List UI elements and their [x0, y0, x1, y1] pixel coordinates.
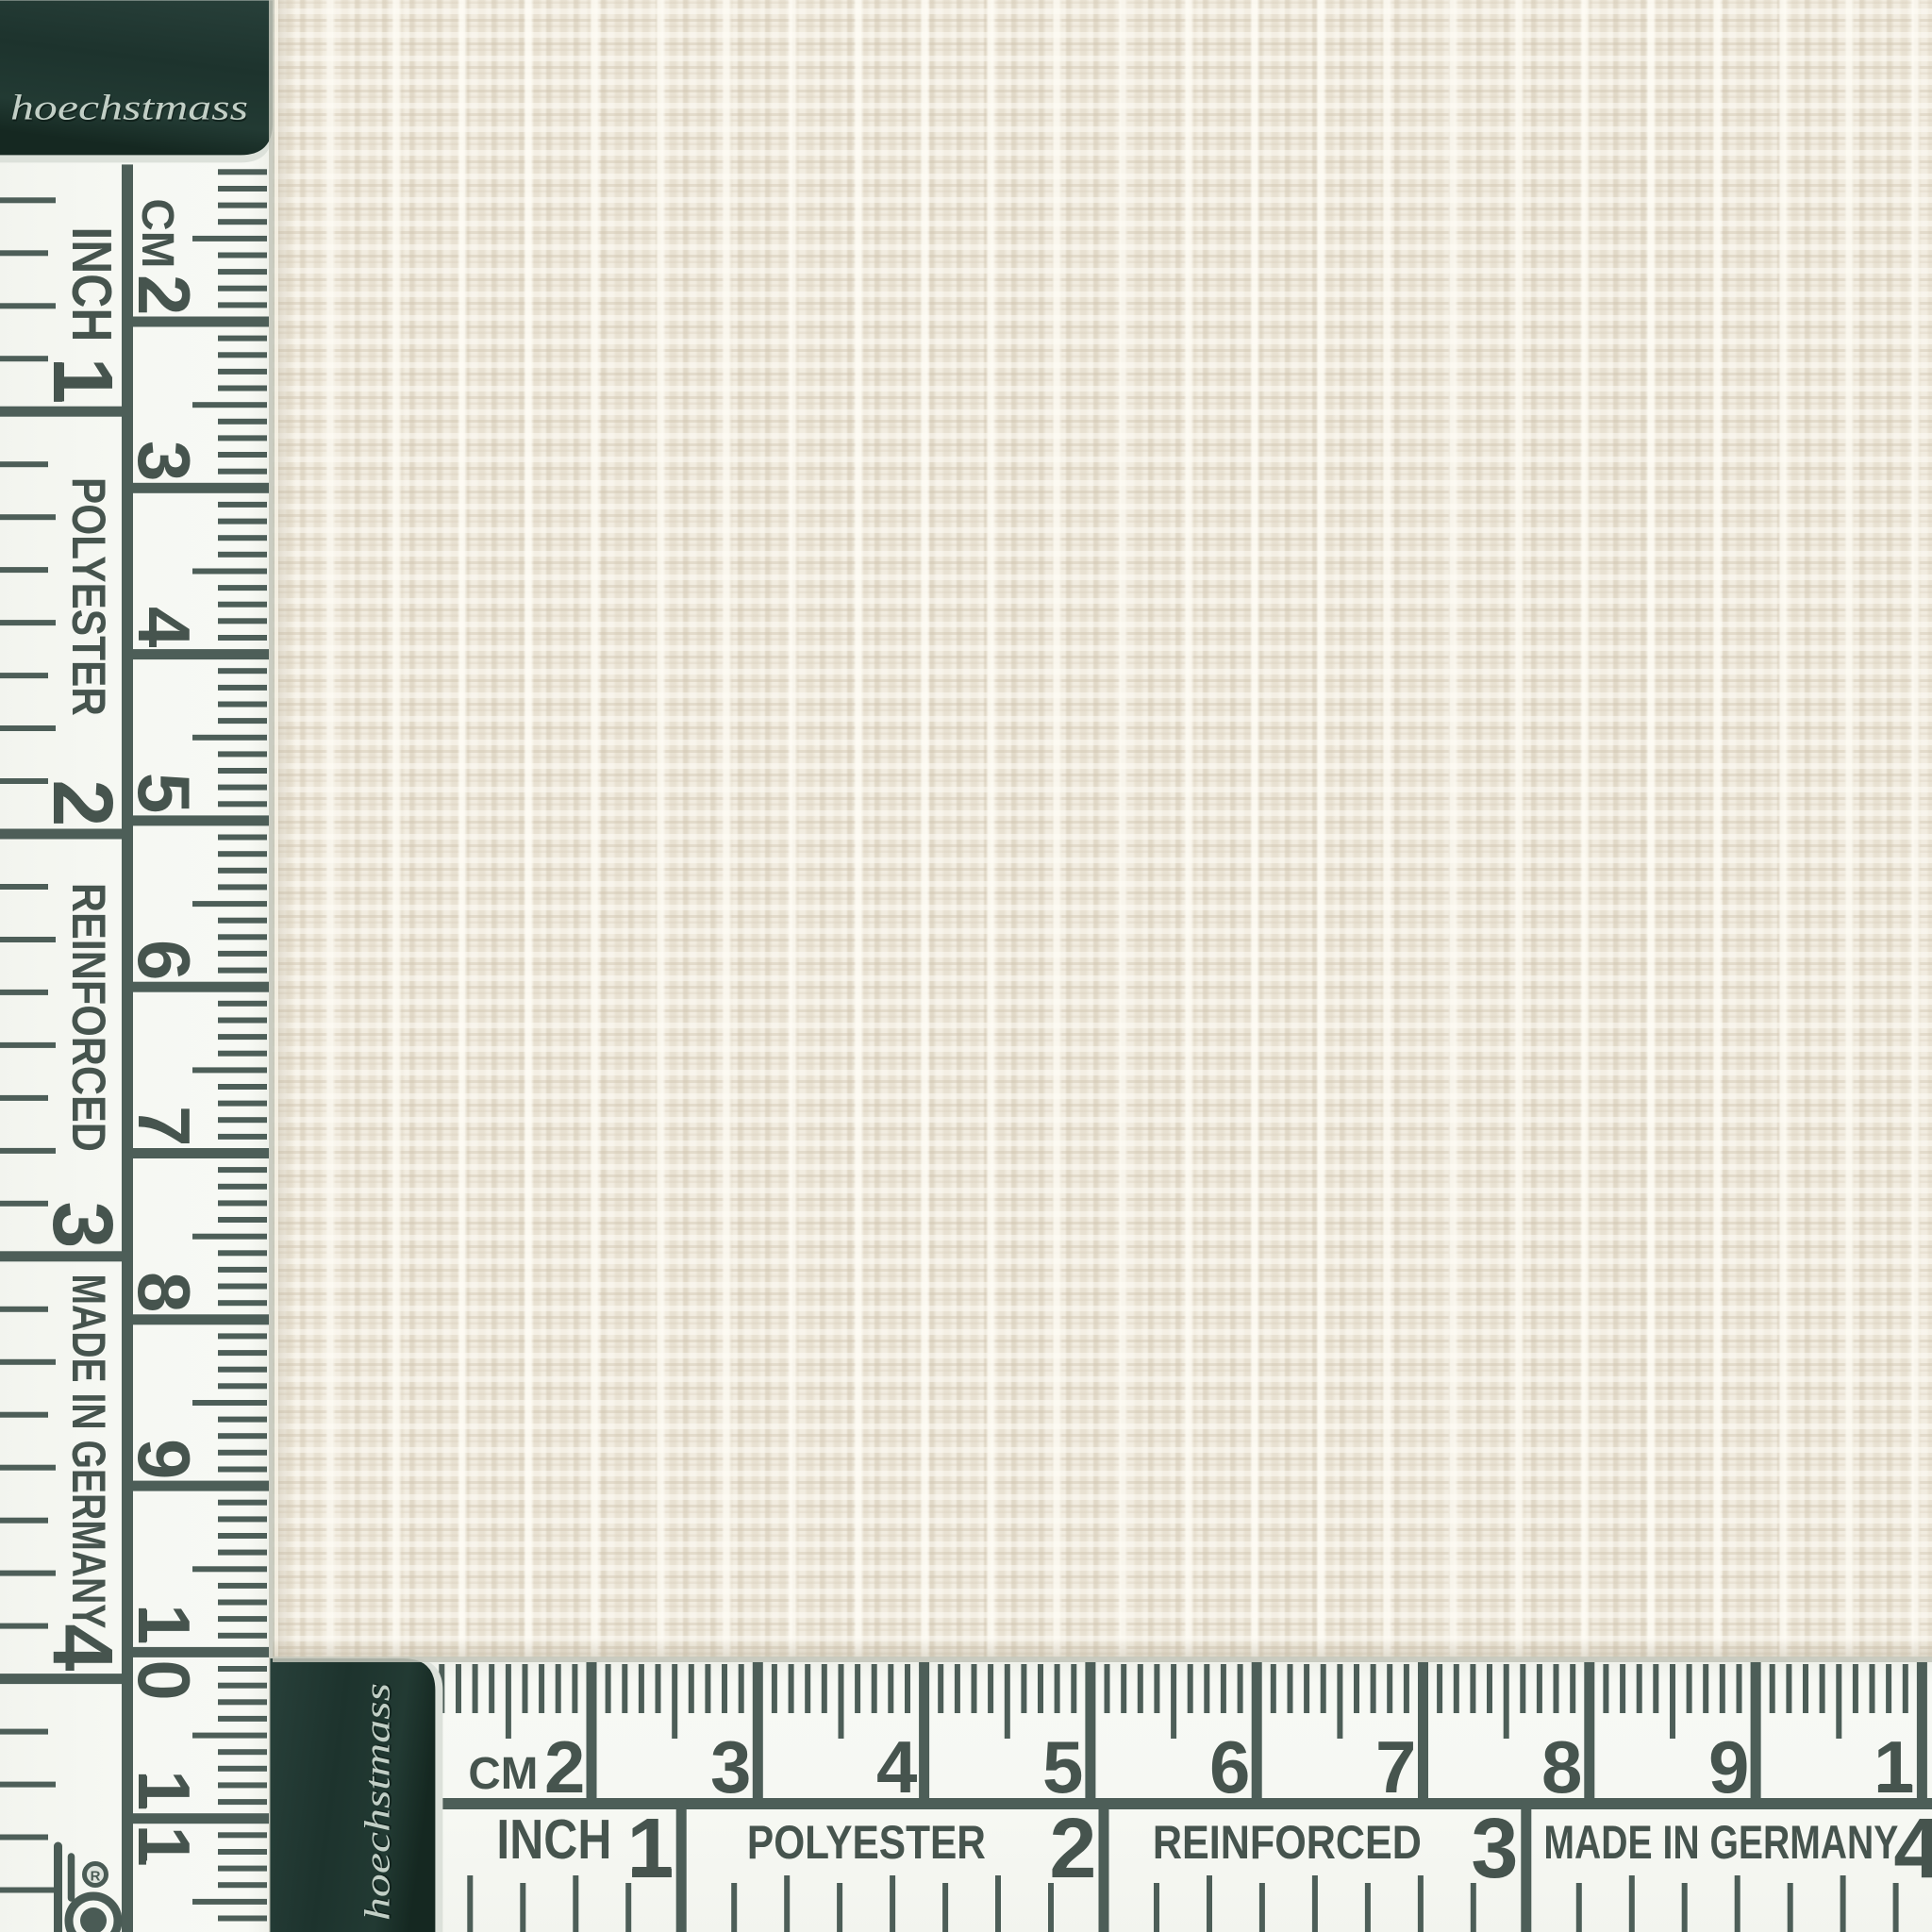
svg-text:0: 0: [123, 1659, 206, 1700]
svg-text:4: 4: [123, 607, 206, 647]
svg-text:MADE IN GERMANY: MADE IN GERMANY: [62, 1274, 115, 1628]
svg-text:4: 4: [876, 1725, 917, 1808]
svg-text:2: 2: [35, 779, 129, 826]
svg-text:5: 5: [1042, 1725, 1083, 1808]
svg-text:POLYESTER: POLYESTER: [747, 1816, 986, 1869]
svg-text:R: R: [91, 1869, 101, 1885]
svg-text:6: 6: [1209, 1725, 1250, 1808]
svg-text:REINFORCED: REINFORCED: [1153, 1816, 1422, 1869]
svg-text:8: 8: [1541, 1725, 1582, 1808]
svg-text:CM: CM: [468, 1749, 538, 1799]
svg-text:1: 1: [123, 1604, 206, 1644]
svg-text:3: 3: [710, 1725, 751, 1808]
svg-text:2: 2: [123, 275, 206, 315]
svg-text:POLYESTER: POLYESTER: [62, 477, 115, 716]
svg-text:INCH: INCH: [496, 1808, 611, 1871]
svg-text:REINFORCED: REINFORCED: [62, 883, 115, 1152]
svg-text:3: 3: [35, 1201, 129, 1248]
svg-text:7: 7: [1375, 1725, 1416, 1808]
svg-text:hoechstmass: hoechstmass: [358, 1683, 397, 1921]
svg-text:3: 3: [123, 441, 206, 481]
svg-text:1: 1: [1874, 1725, 1914, 1808]
svg-text:hoechstmass: hoechstmass: [10, 88, 248, 127]
svg-text:1: 1: [123, 1770, 206, 1810]
svg-text:2: 2: [1049, 1802, 1096, 1896]
svg-text:1: 1: [123, 1825, 206, 1866]
svg-text:6: 6: [123, 940, 206, 980]
svg-text:1: 1: [35, 357, 129, 404]
svg-text:3: 3: [1471, 1802, 1518, 1896]
svg-text:1: 1: [626, 1802, 674, 1896]
svg-text:7: 7: [123, 1106, 206, 1146]
svg-text:9: 9: [123, 1439, 206, 1479]
svg-text:9: 9: [1708, 1725, 1749, 1808]
svg-text:CM: CM: [132, 198, 182, 268]
svg-text:4: 4: [1893, 1802, 1932, 1896]
svg-text:8: 8: [123, 1272, 206, 1312]
svg-text:INCH: INCH: [60, 226, 123, 341]
svg-text:2: 2: [544, 1725, 585, 1808]
svg-text:5: 5: [123, 773, 206, 813]
svg-text:4: 4: [35, 1624, 129, 1671]
svg-text:MADE IN GERMANY: MADE IN GERMANY: [1543, 1816, 1898, 1869]
